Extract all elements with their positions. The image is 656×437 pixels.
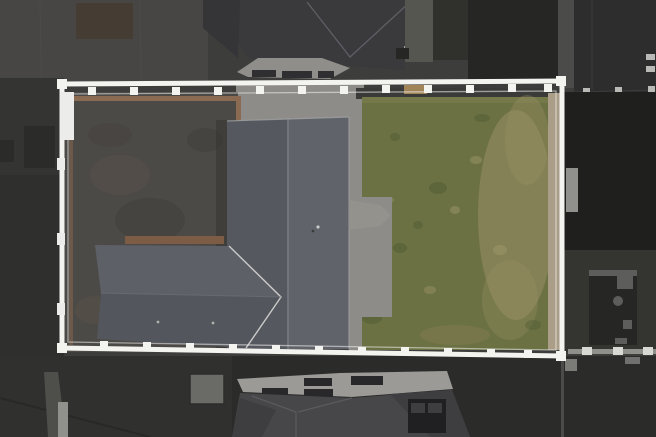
- bay-window: [282, 71, 312, 78]
- garage-vent: [212, 322, 215, 325]
- fence-post-bottom: [487, 349, 495, 357]
- white-dash: [646, 66, 655, 72]
- fence-post-bottom: [444, 348, 452, 356]
- fence-post-top: [130, 87, 138, 95]
- shed-top-edge: [589, 270, 637, 276]
- fence-post: [613, 347, 623, 355]
- small-garden-top: [433, 0, 470, 60]
- fence-post-bottom: [143, 342, 151, 350]
- fence-post-bottom: [229, 344, 237, 352]
- topright-roof: [574, 0, 656, 92]
- fence-post-bottom: [401, 347, 409, 355]
- aerial-photo: [0, 0, 656, 437]
- tan-planter-box: [404, 85, 427, 94]
- driveway-mottle: [115, 198, 185, 242]
- lawn-dark-blotch: [413, 221, 423, 229]
- bay-window: [318, 71, 334, 78]
- fence-post-left: [57, 303, 65, 315]
- fence-post-bottom: [100, 341, 108, 349]
- bin-lid: [411, 403, 425, 413]
- fence-post: [582, 347, 592, 355]
- fence-post-bottom: [186, 343, 194, 351]
- fence-post-bottom: [315, 346, 323, 354]
- left-gate-post: [60, 92, 74, 140]
- fence-corner: [57, 343, 67, 353]
- lawn-dark-blotch: [429, 182, 447, 194]
- driveway-mottle: [88, 123, 132, 147]
- lawn-worn-patch: [505, 95, 549, 185]
- lawn-dark-blotch: [393, 243, 407, 253]
- lawn-brown-patch: [420, 325, 490, 345]
- fence-post: [648, 86, 655, 92]
- gravel-patch: [76, 3, 133, 39]
- fence-corner: [556, 351, 566, 361]
- shed-knob: [613, 296, 623, 306]
- tan-edging-top: [74, 96, 240, 101]
- left-dark-square: [24, 126, 55, 168]
- fence-post-top: [214, 87, 222, 95]
- fence-post-top: [298, 86, 306, 94]
- surroundings-right: [564, 92, 656, 352]
- fence-post-bottom: [272, 345, 280, 353]
- pavement-strip-top: [405, 0, 433, 62]
- roof-panel: [304, 378, 332, 386]
- lawn-speckle: [493, 245, 507, 255]
- driveway-mottle: [90, 155, 150, 195]
- roof-panel: [351, 376, 383, 385]
- fence-post-top: [544, 84, 552, 92]
- fence-post-top: [256, 86, 264, 94]
- fence-line-bottom-right: [568, 349, 656, 354]
- topright-path: [558, 0, 574, 88]
- roof-vent-light: [316, 225, 319, 228]
- fence-corner: [57, 79, 67, 89]
- fence-post-top: [466, 85, 474, 93]
- lawn-speckle: [450, 206, 460, 214]
- fence-post-top: [88, 87, 96, 95]
- dark-object: [396, 48, 409, 59]
- roof-vent-dark: [312, 230, 315, 233]
- bay-window: [252, 70, 276, 77]
- fence-post-top: [508, 84, 516, 92]
- fence-post-top: [424, 85, 432, 93]
- lawn-dark-blotch: [474, 114, 490, 122]
- bin-small: [447, 401, 456, 415]
- topright-garden: [468, 0, 560, 84]
- lawn-speckle: [470, 156, 482, 164]
- fence-post: [643, 347, 653, 355]
- fence-post-left: [57, 233, 65, 245]
- fence-post-left: [57, 158, 65, 170]
- left-dark-small: [0, 140, 14, 162]
- bottom-shed: [190, 374, 224, 404]
- shed-detail: [623, 320, 632, 329]
- lawn-speckle: [424, 286, 436, 294]
- fence-post-top: [382, 85, 390, 93]
- garage-vent: [157, 321, 160, 324]
- shed-detail: [615, 338, 627, 344]
- fence-corner: [556, 76, 566, 86]
- bottomleft-light-bar: [58, 402, 68, 437]
- roof-panel: [304, 389, 333, 397]
- lawn-dark-blotch: [390, 133, 400, 141]
- white-dash: [646, 54, 655, 60]
- fence-post-bottom: [358, 347, 366, 355]
- fence-post-top: [340, 86, 348, 94]
- corner-light-blob: [565, 359, 577, 371]
- right-gate-patch: [566, 168, 578, 212]
- shed-light-patch: [617, 276, 633, 289]
- bin-lid: [428, 403, 442, 413]
- fence-dash: [625, 357, 640, 364]
- fence-post-bottom: [524, 350, 532, 358]
- roof-plane-right: [288, 117, 349, 351]
- tan-edging-left: [69, 140, 73, 345]
- bottom-right-seam: [561, 358, 564, 437]
- tan-edging-garage: [125, 236, 224, 244]
- lawn-dark-blotch: [525, 320, 541, 330]
- fence-post-top: [172, 87, 180, 95]
